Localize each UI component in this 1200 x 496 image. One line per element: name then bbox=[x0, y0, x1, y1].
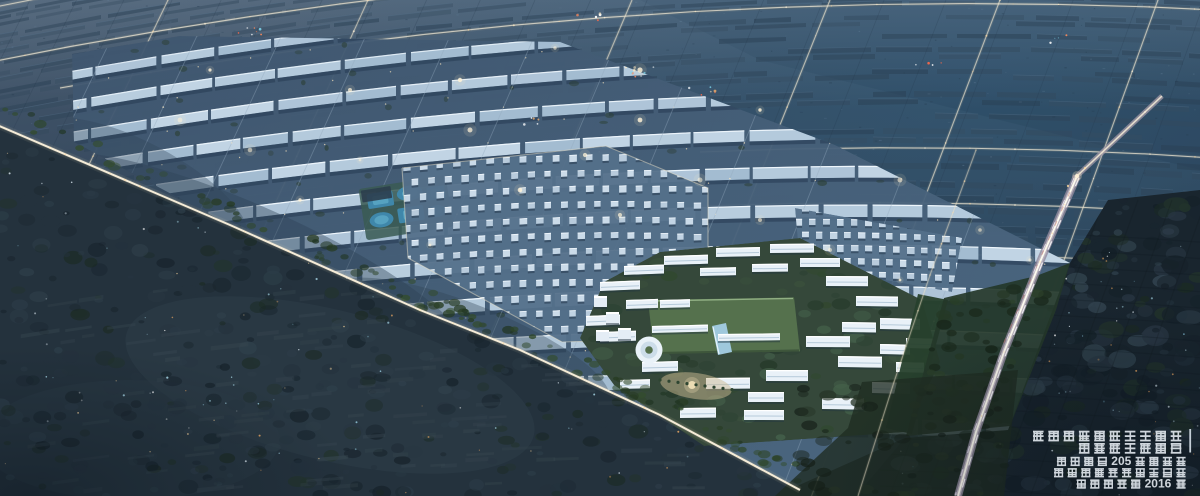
svg-text:2016: 2016 bbox=[1145, 477, 1172, 491]
svg-text:205: 205 bbox=[1111, 454, 1131, 468]
